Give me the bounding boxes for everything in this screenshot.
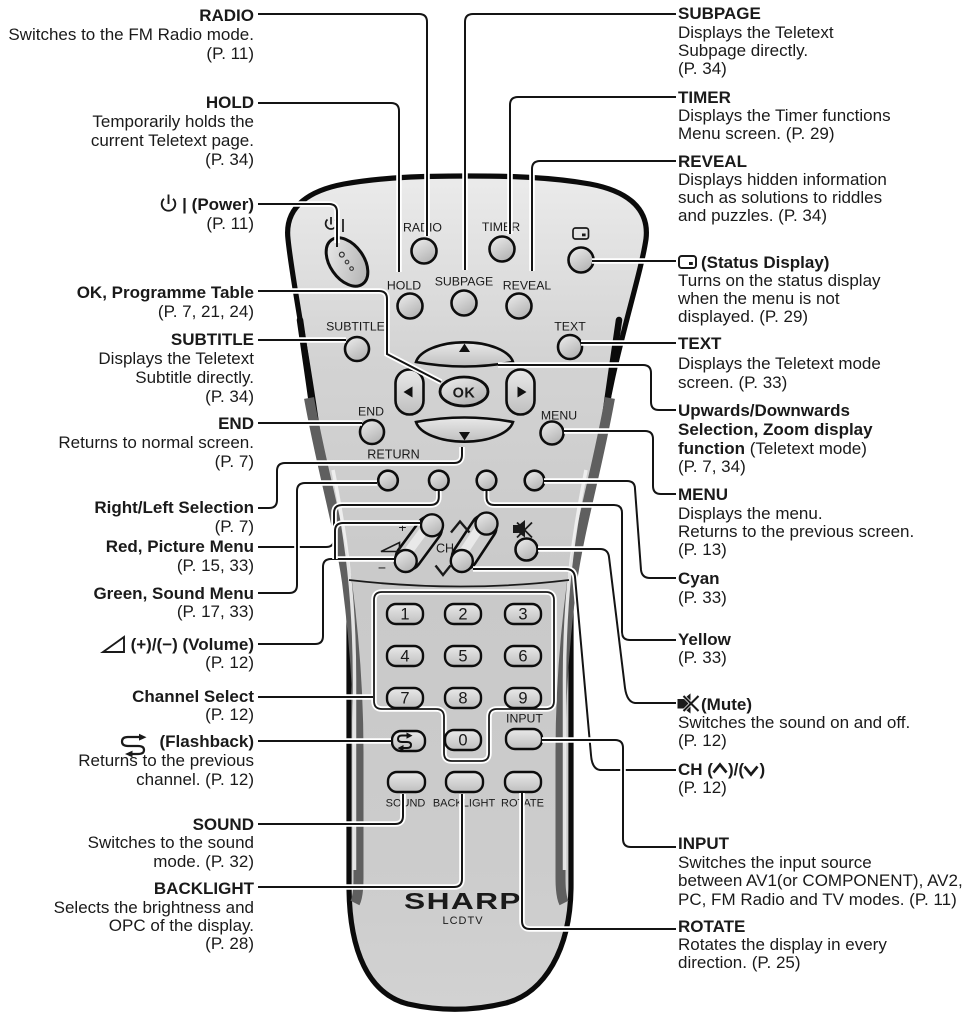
svg-text:Selects the brightness and: Selects the brightness and bbox=[54, 898, 254, 917]
svg-text:(Flashback): (Flashback) bbox=[160, 732, 254, 751]
svg-text:SUBPAGE: SUBPAGE bbox=[435, 275, 494, 289]
svg-text:RADIO: RADIO bbox=[403, 221, 442, 235]
svg-text:(P. 34): (P. 34) bbox=[678, 59, 727, 78]
svg-text:mode. (P. 32): mode. (P. 32) bbox=[153, 852, 254, 871]
svg-text:(Mute): (Mute) bbox=[701, 695, 752, 714]
svg-text:(P. 7): (P. 7) bbox=[215, 517, 254, 536]
svg-text:(P. 7, 34): (P. 7, 34) bbox=[678, 457, 746, 476]
svg-text:Displays the Teletext mode: Displays the Teletext mode bbox=[678, 354, 881, 373]
svg-text:2: 2 bbox=[458, 606, 467, 624]
svg-text:Red, Picture Menu: Red, Picture Menu bbox=[106, 537, 254, 556]
svg-text:(P. 11): (P. 11) bbox=[206, 44, 254, 63]
svg-text:LCDTV: LCDTV bbox=[442, 915, 483, 927]
svg-text:END: END bbox=[358, 405, 384, 419]
svg-text:RETURN: RETURN bbox=[367, 448, 419, 462]
svg-text:(P. 33): (P. 33) bbox=[678, 588, 727, 607]
svg-text:OPC of the display.: OPC of the display. bbox=[109, 916, 254, 935]
svg-text:RADIO: RADIO bbox=[199, 6, 254, 25]
svg-text:INPUT: INPUT bbox=[506, 712, 543, 726]
svg-text:MENU: MENU bbox=[678, 485, 728, 504]
svg-text:8: 8 bbox=[458, 690, 467, 708]
svg-text:4: 4 bbox=[400, 648, 409, 666]
svg-text:such as solutions to riddles: such as solutions to riddles bbox=[678, 188, 882, 207]
svg-text:−: − bbox=[378, 560, 386, 576]
svg-text:Switches to the FM Radio mode.: Switches to the FM Radio mode. bbox=[8, 25, 254, 44]
svg-text:HOLD: HOLD bbox=[206, 93, 254, 112]
svg-text:(P. 12): (P. 12) bbox=[205, 653, 254, 672]
svg-text:BACKLIGHT: BACKLIGHT bbox=[154, 879, 255, 898]
svg-text:Rotates the display in every: Rotates the display in every bbox=[678, 935, 887, 954]
svg-text:1: 1 bbox=[400, 606, 409, 624]
svg-text:TIMER: TIMER bbox=[482, 220, 520, 234]
svg-text:INPUT: INPUT bbox=[678, 834, 730, 853]
svg-text:Menu screen. (P. 29): Menu screen. (P. 29) bbox=[678, 124, 835, 143]
svg-text:Switches the sound on and off.: Switches the sound on and off. bbox=[678, 713, 910, 732]
svg-text:0: 0 bbox=[458, 732, 467, 750]
svg-text:(P. 34): (P. 34) bbox=[205, 150, 254, 169]
svg-text:SOUND: SOUND bbox=[193, 815, 254, 834]
svg-text:END: END bbox=[218, 414, 254, 433]
svg-text:(P. 15, 33): (P. 15, 33) bbox=[177, 556, 254, 575]
svg-text:CH (: CH ( bbox=[678, 760, 713, 779]
svg-text:Returns to the previous: Returns to the previous bbox=[78, 751, 254, 770]
svg-text:(P. 12): (P. 12) bbox=[205, 705, 254, 724]
svg-text:Yellow: Yellow bbox=[678, 630, 732, 649]
svg-text:(P. 34): (P. 34) bbox=[205, 387, 254, 406]
svg-text:SHARP: SHARP bbox=[404, 888, 522, 914]
svg-text:Subtitle directly.: Subtitle directly. bbox=[135, 368, 254, 387]
svg-text:screen. (P. 33): screen. (P. 33) bbox=[678, 373, 787, 392]
svg-text:SUBTITLE: SUBTITLE bbox=[326, 320, 385, 334]
svg-text:(P. 28): (P. 28) bbox=[205, 934, 254, 953]
svg-text:ROTATE: ROTATE bbox=[678, 917, 745, 936]
svg-text:Subpage directly.: Subpage directly. bbox=[678, 41, 808, 60]
svg-text:)/(: )/( bbox=[728, 760, 744, 779]
svg-text:OK, Programme Table: OK, Programme Table bbox=[77, 283, 254, 302]
svg-text:3: 3 bbox=[518, 606, 527, 624]
svg-text:Upwards/Downwards: Upwards/Downwards bbox=[678, 401, 850, 420]
svg-text:(+)/(−) (Volume): (+)/(−) (Volume) bbox=[131, 635, 254, 654]
svg-text:Right/Left Selection: Right/Left Selection bbox=[94, 498, 254, 517]
svg-text:SUBTITLE: SUBTITLE bbox=[171, 330, 254, 349]
svg-text:Returns to the previous screen: Returns to the previous screen. bbox=[678, 522, 914, 541]
svg-text:(P. 13): (P. 13) bbox=[678, 540, 727, 559]
svg-text:7: 7 bbox=[400, 690, 409, 708]
svg-text:PC, FM Radio and TV modes. (P.: PC, FM Radio and TV modes. (P. 11) bbox=[678, 890, 957, 909]
svg-text:CH: CH bbox=[436, 542, 454, 556]
svg-text:MENU: MENU bbox=[541, 409, 577, 423]
svg-text:| (Power): | (Power) bbox=[182, 195, 254, 214]
svg-text:(P. 12): (P. 12) bbox=[678, 778, 727, 797]
svg-text:(P. 33): (P. 33) bbox=[678, 648, 727, 667]
svg-text:9: 9 bbox=[518, 690, 527, 708]
svg-text:5: 5 bbox=[458, 648, 467, 666]
svg-text:and puzzles. (P. 34): and puzzles. (P. 34) bbox=[678, 206, 827, 225]
svg-text:REVEAL: REVEAL bbox=[503, 279, 552, 293]
svg-text:(P. 7): (P. 7) bbox=[215, 452, 254, 471]
svg-text:HOLD: HOLD bbox=[387, 279, 421, 293]
svg-text:(P. 7, 21, 24): (P. 7, 21, 24) bbox=[158, 302, 254, 321]
svg-text:TEXT: TEXT bbox=[678, 334, 722, 353]
svg-text:direction. (P. 25): direction. (P. 25) bbox=[678, 953, 801, 972]
svg-text:): ) bbox=[760, 760, 766, 779]
svg-text:Cyan: Cyan bbox=[678, 569, 720, 588]
svg-text:REVEAL: REVEAL bbox=[678, 152, 747, 171]
svg-text:between AV1(or COMPONENT), AV2: between AV1(or COMPONENT), AV2, bbox=[678, 871, 963, 890]
svg-text:Switches the input source: Switches the input source bbox=[678, 853, 872, 872]
svg-text:channel. (P. 12): channel. (P. 12) bbox=[136, 770, 254, 789]
svg-text:Temporarily holds the: Temporarily holds the bbox=[92, 112, 254, 131]
svg-text:TEXT: TEXT bbox=[554, 320, 586, 334]
svg-text:OK: OK bbox=[453, 386, 476, 402]
svg-text:6: 6 bbox=[518, 648, 527, 666]
svg-text:function (Teletext mode): function (Teletext mode) bbox=[678, 439, 867, 458]
svg-text:current Teletext page.: current Teletext page. bbox=[91, 131, 254, 150]
svg-text:Turns on the status display: Turns on the status display bbox=[678, 271, 881, 290]
svg-text:(Status Display): (Status Display) bbox=[701, 253, 829, 272]
svg-text:Returns to normal screen.: Returns to normal screen. bbox=[58, 433, 254, 452]
svg-text:(P. 11): (P. 11) bbox=[206, 214, 254, 233]
svg-text:displayed. (P. 29): displayed. (P. 29) bbox=[678, 307, 808, 326]
svg-text:Displays the Teletext: Displays the Teletext bbox=[98, 349, 254, 368]
svg-text:Channel Select: Channel Select bbox=[132, 687, 254, 706]
svg-text:when the menu is not: when the menu is not bbox=[677, 289, 840, 308]
svg-text:Switches to the sound: Switches to the sound bbox=[88, 833, 254, 852]
svg-text:Selection, Zoom display: Selection, Zoom display bbox=[678, 420, 873, 439]
svg-text:Displays the menu.: Displays the menu. bbox=[678, 504, 823, 523]
svg-text:Green, Sound Menu: Green, Sound Menu bbox=[93, 584, 254, 603]
svg-text:(P. 12): (P. 12) bbox=[678, 731, 727, 750]
svg-text:Displays hidden information: Displays hidden information bbox=[678, 170, 887, 189]
svg-text:(P. 17, 33): (P. 17, 33) bbox=[177, 602, 254, 621]
svg-text:SUBPAGE: SUBPAGE bbox=[678, 4, 761, 23]
svg-text:TIMER: TIMER bbox=[678, 88, 731, 107]
svg-text:Displays the Timer functions: Displays the Timer functions bbox=[678, 106, 891, 125]
svg-text:Displays the Teletext: Displays the Teletext bbox=[678, 23, 834, 42]
